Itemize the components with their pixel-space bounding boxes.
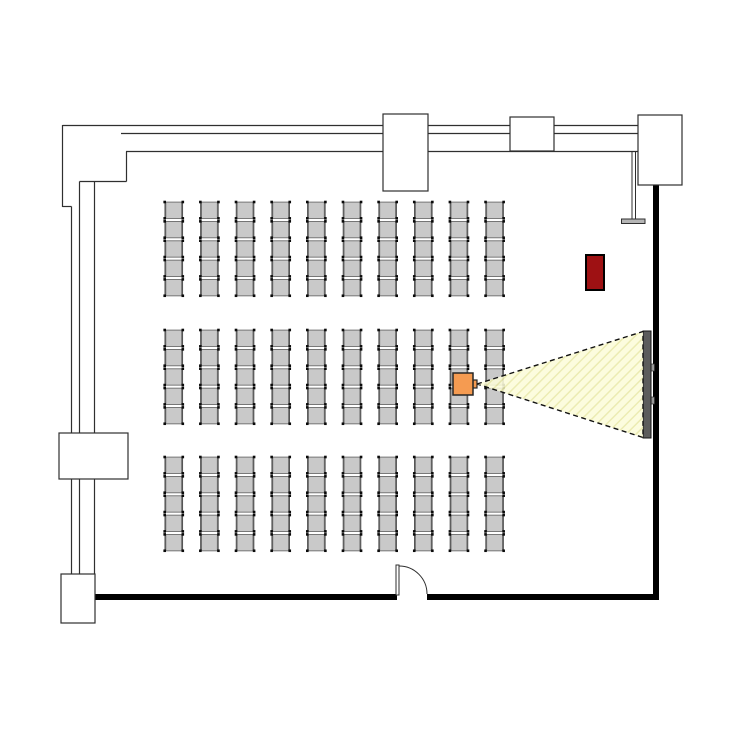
chair bbox=[449, 329, 470, 348]
chair bbox=[377, 387, 398, 406]
chair bbox=[235, 329, 256, 348]
chair bbox=[484, 220, 505, 239]
chair bbox=[306, 259, 327, 278]
chair bbox=[484, 278, 505, 297]
chair bbox=[377, 259, 398, 278]
column bbox=[638, 115, 682, 185]
chair bbox=[163, 329, 184, 348]
chair bbox=[449, 456, 470, 475]
chair bbox=[413, 220, 434, 239]
chair bbox=[199, 533, 220, 552]
chair bbox=[163, 387, 184, 406]
chair bbox=[413, 201, 434, 220]
chair bbox=[306, 201, 327, 220]
chair bbox=[235, 201, 256, 220]
chair bbox=[413, 475, 434, 494]
chair bbox=[235, 514, 256, 533]
chair bbox=[270, 494, 291, 513]
chair bbox=[306, 456, 327, 475]
chair bbox=[413, 329, 434, 348]
floor-plan-page bbox=[0, 0, 750, 750]
chair bbox=[270, 514, 291, 533]
door-leaf bbox=[396, 565, 399, 595]
chair bbox=[235, 220, 256, 239]
chair bbox=[235, 278, 256, 297]
chair bbox=[413, 367, 434, 386]
chair bbox=[270, 367, 291, 386]
chair bbox=[235, 406, 256, 425]
chair bbox=[377, 220, 398, 239]
chair bbox=[413, 278, 434, 297]
chair bbox=[413, 533, 434, 552]
fixture-bar bbox=[622, 219, 646, 224]
column bbox=[61, 574, 95, 623]
chair bbox=[163, 239, 184, 258]
chair bbox=[342, 329, 363, 348]
chair bbox=[413, 406, 434, 425]
chair bbox=[270, 348, 291, 367]
floor-plan-drawing bbox=[0, 0, 750, 750]
chair bbox=[270, 533, 291, 552]
chair bbox=[342, 406, 363, 425]
chair bbox=[377, 367, 398, 386]
chair bbox=[449, 201, 470, 220]
chair bbox=[377, 348, 398, 367]
chair bbox=[484, 348, 505, 367]
screen-bar bbox=[643, 331, 651, 438]
chair bbox=[270, 220, 291, 239]
chair bbox=[484, 514, 505, 533]
chair bbox=[199, 406, 220, 425]
chair bbox=[163, 367, 184, 386]
chair bbox=[449, 220, 470, 239]
chair bbox=[199, 329, 220, 348]
chair bbox=[199, 367, 220, 386]
chair bbox=[270, 239, 291, 258]
chair bbox=[413, 494, 434, 513]
door-swing bbox=[396, 565, 427, 595]
chair bbox=[484, 456, 505, 475]
chair bbox=[270, 278, 291, 297]
chair bbox=[199, 239, 220, 258]
chair bbox=[306, 387, 327, 406]
chair bbox=[484, 201, 505, 220]
chair bbox=[235, 348, 256, 367]
chair bbox=[413, 239, 434, 258]
chair bbox=[484, 494, 505, 513]
chair bbox=[342, 348, 363, 367]
chair bbox=[377, 406, 398, 425]
chair bbox=[377, 329, 398, 348]
chair bbox=[342, 220, 363, 239]
chair bbox=[270, 456, 291, 475]
chair bbox=[377, 514, 398, 533]
chair bbox=[342, 259, 363, 278]
chair bbox=[342, 278, 363, 297]
chair bbox=[235, 239, 256, 258]
chair bbox=[163, 514, 184, 533]
cabinet-rect bbox=[586, 255, 604, 290]
chair bbox=[199, 494, 220, 513]
chair bbox=[199, 348, 220, 367]
chair bbox=[342, 494, 363, 513]
chair bbox=[484, 329, 505, 348]
chair bbox=[270, 259, 291, 278]
chair bbox=[413, 456, 434, 475]
chair bbox=[270, 201, 291, 220]
chair bbox=[449, 348, 470, 367]
chair bbox=[199, 220, 220, 239]
chair bbox=[199, 201, 220, 220]
chair bbox=[413, 387, 434, 406]
chair bbox=[306, 278, 327, 297]
chair bbox=[449, 239, 470, 258]
chair bbox=[163, 278, 184, 297]
chair bbox=[163, 494, 184, 513]
chair bbox=[342, 201, 363, 220]
chair bbox=[306, 406, 327, 425]
chair bbox=[342, 514, 363, 533]
chair bbox=[199, 514, 220, 533]
projection-screen bbox=[643, 331, 655, 438]
chair bbox=[306, 475, 327, 494]
projector-body bbox=[453, 373, 473, 395]
chair bbox=[163, 456, 184, 475]
chair bbox=[377, 456, 398, 475]
chair bbox=[235, 456, 256, 475]
chair bbox=[306, 494, 327, 513]
chair bbox=[199, 456, 220, 475]
chair bbox=[235, 494, 256, 513]
chair bbox=[270, 475, 291, 494]
chair bbox=[163, 201, 184, 220]
column bbox=[510, 117, 554, 151]
chair bbox=[270, 406, 291, 425]
chair bbox=[199, 475, 220, 494]
chair bbox=[342, 239, 363, 258]
chair bbox=[377, 475, 398, 494]
chair bbox=[163, 406, 184, 425]
chair bbox=[306, 533, 327, 552]
chair bbox=[342, 475, 363, 494]
chair bbox=[235, 259, 256, 278]
chair bbox=[484, 406, 505, 425]
projector bbox=[453, 373, 477, 395]
chair bbox=[270, 387, 291, 406]
chair bbox=[306, 220, 327, 239]
column bbox=[383, 114, 428, 191]
solid-wall bbox=[427, 594, 659, 600]
chair bbox=[377, 278, 398, 297]
chair bbox=[484, 239, 505, 258]
chair bbox=[449, 278, 470, 297]
chair bbox=[163, 533, 184, 552]
chair bbox=[163, 475, 184, 494]
chair bbox=[306, 514, 327, 533]
chair bbox=[449, 475, 470, 494]
chair bbox=[235, 475, 256, 494]
chair bbox=[377, 239, 398, 258]
chair bbox=[377, 533, 398, 552]
chair bbox=[306, 329, 327, 348]
chair bbox=[199, 278, 220, 297]
chair bbox=[163, 259, 184, 278]
chair bbox=[199, 387, 220, 406]
chair bbox=[235, 367, 256, 386]
chair bbox=[449, 533, 470, 552]
chair bbox=[449, 494, 470, 513]
chair bbox=[484, 475, 505, 494]
chair bbox=[306, 348, 327, 367]
chair bbox=[484, 533, 505, 552]
solid-wall bbox=[653, 184, 659, 600]
column bbox=[59, 433, 128, 479]
chair bbox=[377, 201, 398, 220]
chair bbox=[449, 514, 470, 533]
chair bbox=[377, 494, 398, 513]
chair bbox=[342, 367, 363, 386]
chair bbox=[306, 367, 327, 386]
chair bbox=[342, 533, 363, 552]
chair bbox=[235, 387, 256, 406]
chair bbox=[270, 329, 291, 348]
chair bbox=[413, 348, 434, 367]
chair bbox=[413, 514, 434, 533]
chair bbox=[199, 259, 220, 278]
chair bbox=[449, 406, 470, 425]
chair bbox=[413, 259, 434, 278]
red-cabinet bbox=[586, 255, 604, 290]
chair bbox=[342, 387, 363, 406]
chair bbox=[484, 259, 505, 278]
chair bbox=[342, 456, 363, 475]
solid-wall bbox=[95, 594, 397, 600]
chair bbox=[306, 239, 327, 258]
chair bbox=[235, 533, 256, 552]
chair bbox=[449, 259, 470, 278]
door-arc bbox=[399, 566, 427, 594]
chair bbox=[163, 348, 184, 367]
chair bbox=[163, 220, 184, 239]
